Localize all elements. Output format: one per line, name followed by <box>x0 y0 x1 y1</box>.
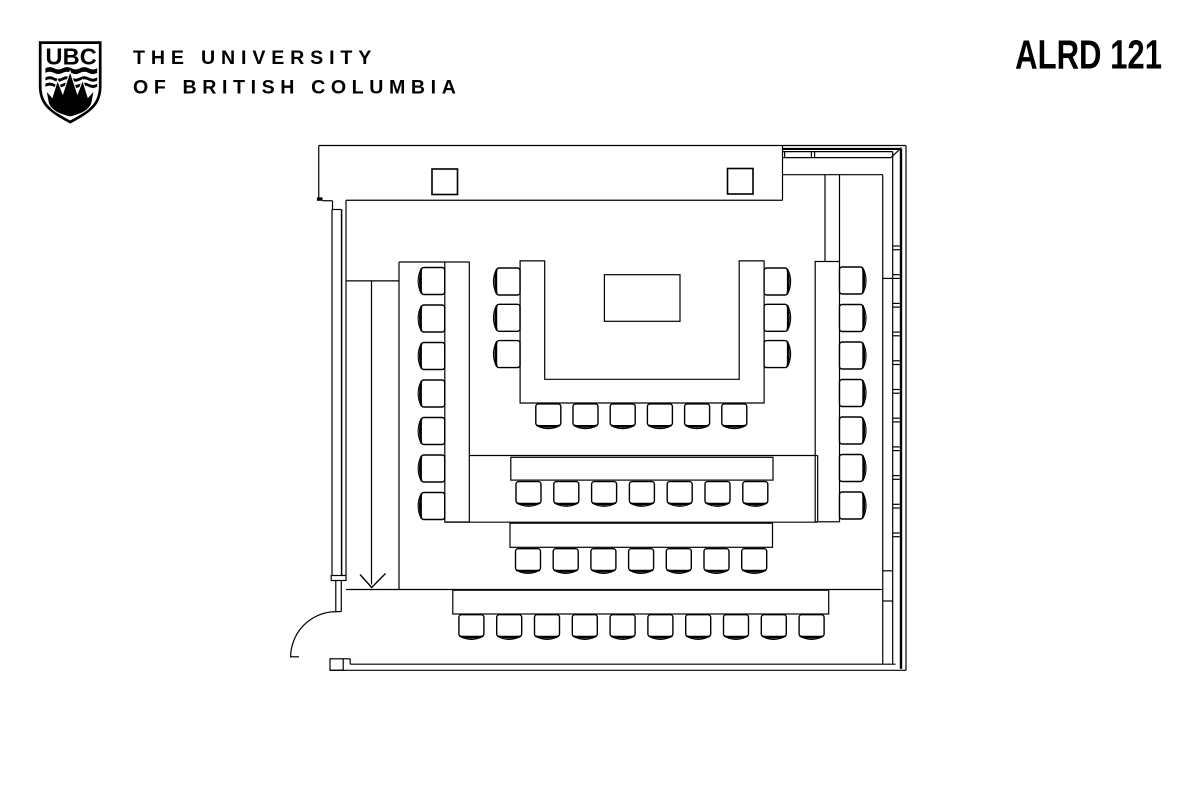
svg-text:OF BRITISH COLUMBIA: OF BRITISH COLUMBIA <box>133 76 461 98</box>
svg-text:UBC: UBC <box>45 43 97 69</box>
svg-text:ALRD 121: ALRD 121 <box>1015 32 1162 78</box>
svg-text:THE UNIVERSITY: THE UNIVERSITY <box>133 47 377 69</box>
